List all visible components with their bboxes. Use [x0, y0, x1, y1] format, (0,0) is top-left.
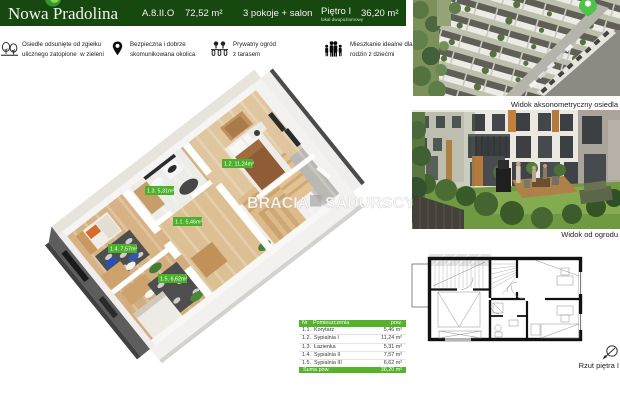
svg-text:BRACIA: BRACIA — [247, 195, 310, 212]
svg-text:1.5. 6,62m²: 1.5. 6,62m² — [160, 277, 187, 283]
svg-text:1.4. 7,57m²: 1.4. 7,57m² — [110, 247, 137, 253]
svg-text:SADURSCY: SADURSCY — [325, 195, 415, 212]
svg-text:1.1. 5,46m²: 1.1. 5,46m² — [175, 220, 202, 226]
svg-text:1.3. 5,31m²: 1.3. 5,31m² — [147, 189, 174, 195]
svg-text:1.2. 11,24m²: 1.2. 11,24m² — [224, 162, 254, 168]
